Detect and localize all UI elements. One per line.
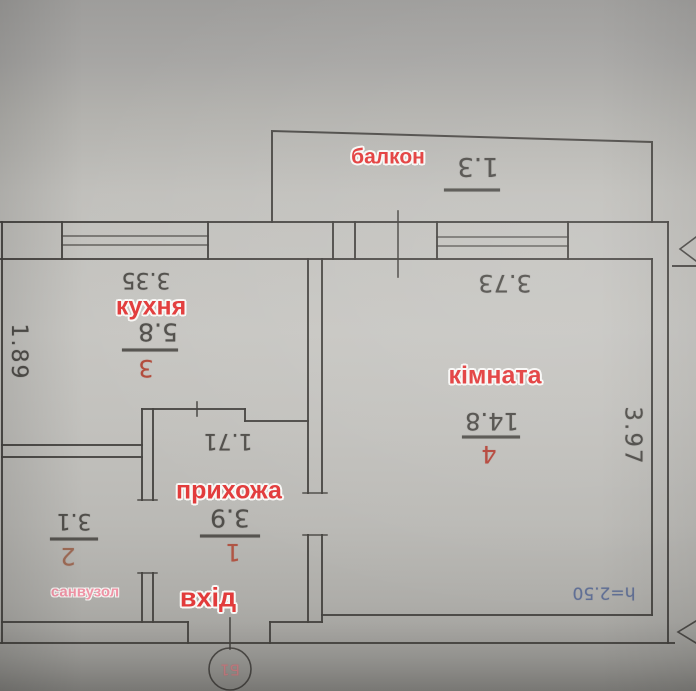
room-window-symbol [437, 222, 568, 259]
room-fraction-bar [462, 436, 520, 439]
room-partition-wall [303, 259, 327, 622]
bathroom-room-number: 2 [60, 544, 75, 568]
entrance-door-tag: Б1 [220, 662, 240, 677]
kitchen-top-dim: 3.35 [122, 268, 171, 290]
bathroom-partition-wall [138, 409, 157, 622]
kitchen-label: кухня [116, 295, 186, 320]
bathroom-label: санвузол [51, 585, 119, 600]
balcony-label: балкон [351, 147, 425, 168]
kitchen-room-number: 3 [138, 356, 153, 380]
room-number: 4 [481, 442, 496, 466]
room-height-note: h=2.50 [573, 584, 636, 601]
floorplan-photo: балкон кухня кімната прихожа санвузол вх… [0, 0, 696, 691]
bottom-wall [0, 615, 674, 643]
hallway-room-number: 1 [225, 540, 240, 564]
hallway-top-dim: 1.71 [204, 429, 253, 451]
hallway-label: прихожа [176, 479, 282, 504]
kitchen-area-dim: 5.8 [138, 320, 178, 345]
balcony-dim-underline [444, 189, 500, 192]
hallway-top-wall [142, 402, 308, 421]
room-area-dim: 14.8 [465, 409, 518, 433]
left-outer-dim: 1.89 [7, 324, 29, 381]
balcony-width-dim: 1.3 [457, 153, 498, 179]
room-label: кімната [448, 364, 541, 389]
room-top-dim: 3.73 [478, 271, 531, 295]
bathroom-area-dim: 3.1 [57, 509, 92, 531]
kitchen-fraction-bar [122, 349, 178, 352]
balcony-door-symbol [333, 211, 437, 277]
right-wall [652, 222, 696, 643]
bathroom-top-wall [2, 445, 142, 457]
hallway-area-dim: 3.9 [210, 506, 250, 531]
bathroom-fraction-bar [50, 538, 98, 541]
room-side-dim: 3.97 [621, 406, 644, 465]
section-arrow-icon [678, 237, 696, 643]
entrance-label: вхід [180, 585, 236, 612]
kitchen-window-symbol [62, 222, 208, 259]
